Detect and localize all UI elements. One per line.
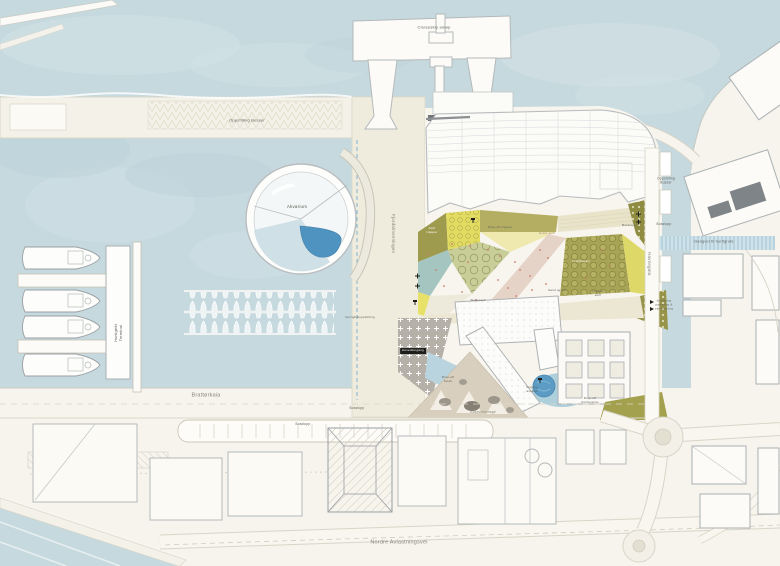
warehouse-hatched-roof [328, 428, 392, 512]
grid-building [558, 332, 630, 404]
ferry-ship [23, 290, 101, 312]
roundabout [623, 530, 655, 562]
pier-finger [18, 340, 118, 353]
terminal-building [106, 246, 130, 379]
conference-pond [533, 375, 555, 397]
ferry-ship [23, 316, 101, 338]
ferry-ship [23, 247, 101, 269]
bus-pier [0, 93, 352, 138]
outer-pier [133, 242, 141, 392]
ferry-ship [23, 354, 101, 376]
ferry-terminal-area [18, 242, 141, 392]
site-plan-drawing [0, 0, 780, 566]
havnegata-road [645, 148, 659, 424]
site-plan: Cruiseskip anløp Oppstilling Busser Akva… [0, 0, 780, 566]
pier-finger [18, 274, 118, 287]
industrial-building [458, 438, 556, 524]
roundabout [643, 417, 683, 457]
marina [184, 291, 336, 334]
